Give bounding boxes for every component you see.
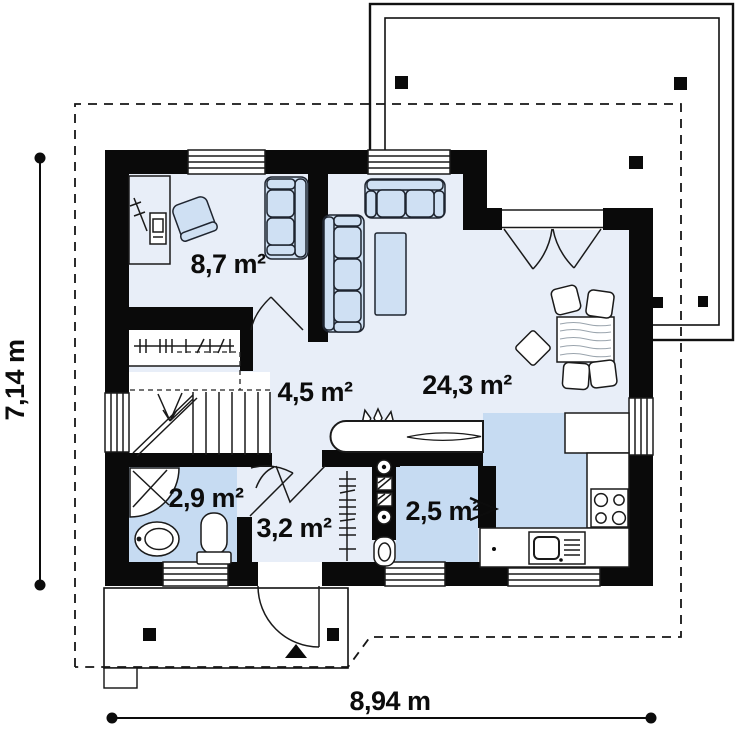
wall-exterior-right xyxy=(629,208,653,586)
terrace-post xyxy=(629,156,643,169)
toilet xyxy=(197,513,231,564)
kitchen-sink xyxy=(529,532,585,564)
window-bathroom-bottom xyxy=(163,562,228,586)
dimension-horizontal: 8,94 m xyxy=(107,686,657,724)
terrace-post xyxy=(698,296,708,307)
wall-bathroom-top xyxy=(105,453,272,467)
terrace-post xyxy=(395,76,408,89)
porch-slab xyxy=(104,588,348,668)
sofa-two-seat xyxy=(365,179,445,218)
floor-plan-page: 8,7 m² 4,5 m² 24,3 m² 2,9 m² 3,2 m² 2,5 … xyxy=(0,0,736,729)
dining-table xyxy=(557,317,614,362)
entry-porch xyxy=(104,588,348,688)
cooktop xyxy=(591,489,628,527)
wall-pantry-right xyxy=(478,466,496,528)
bar-counter xyxy=(331,421,484,452)
terrace-post xyxy=(652,297,663,308)
height-dimension-label: 7,14 m xyxy=(0,339,30,420)
window-dining-right xyxy=(629,398,653,455)
window-stairs-left xyxy=(105,393,129,452)
room-label-hall: 4,5 m² xyxy=(277,377,353,407)
office-sofa xyxy=(265,177,308,259)
kitchen-tall-cabinet xyxy=(565,413,629,453)
room-label-living: 24,3 m² xyxy=(422,370,512,400)
water-heater xyxy=(374,537,395,566)
porch-post xyxy=(143,628,156,641)
wall-office-bottom xyxy=(105,307,253,330)
room-label-bathroom: 2,9 m² xyxy=(168,483,244,513)
room-label-office: 8,7 m² xyxy=(190,249,266,279)
dimension-vertical: 7,14 m xyxy=(0,153,46,591)
room-label-vestibule: 3,2 m² xyxy=(256,513,332,543)
window-living-top xyxy=(368,150,450,174)
wall-exterior-left xyxy=(105,150,129,586)
coffee-table xyxy=(375,233,406,315)
washbasin xyxy=(135,522,179,556)
room-label-pantry: 2,5 m² xyxy=(405,496,481,526)
vent-channel xyxy=(377,493,392,506)
sofa-three-seat xyxy=(323,215,364,332)
terrace-post xyxy=(674,77,687,90)
width-dimension-label: 8,94 m xyxy=(349,686,430,716)
window-pantry-bottom xyxy=(385,562,445,586)
wall-pantry-top xyxy=(396,452,483,466)
porch-step xyxy=(104,668,137,688)
wall-closet-stub xyxy=(240,330,253,371)
window-office-top xyxy=(188,150,265,174)
vent-channel xyxy=(377,477,392,490)
wall-step-corner xyxy=(463,150,487,230)
floor-plan-drawing: 8,7 m² 4,5 m² 24,3 m² 2,9 m² 3,2 m² 2,5 … xyxy=(0,0,736,729)
porch-post xyxy=(327,628,339,641)
wall-bathroom-right xyxy=(237,517,252,562)
desk-chair xyxy=(150,213,166,244)
